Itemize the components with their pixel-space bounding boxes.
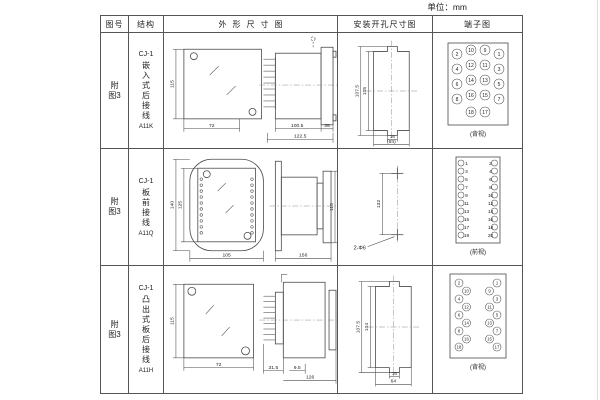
mount-cell-a11q: 132 2-Φ6 (338, 149, 433, 266)
svg-text:6: 6 (489, 176, 492, 182)
svg-text:4: 4 (456, 66, 459, 72)
svg-text:9: 9 (465, 192, 468, 198)
svg-text:115: 115 (329, 202, 335, 210)
svg-text:16: 16 (390, 134, 395, 139)
svg-text:7: 7 (496, 329, 499, 334)
svg-text:122.5: 122.5 (294, 133, 307, 139)
page-edge-line (597, 0, 598, 400)
svg-text:6: 6 (458, 313, 461, 318)
svg-text:8: 8 (456, 96, 459, 102)
svg-text:64: 64 (391, 378, 397, 384)
svg-text:8: 8 (458, 329, 461, 334)
header-terminal: 端子图 (433, 16, 522, 33)
svg-text:10: 10 (468, 47, 474, 53)
svg-text:15: 15 (464, 216, 470, 222)
svg-text:13: 13 (464, 208, 470, 214)
outline-drawing-a11h: 115 72 31.5 9.5 126 (164, 266, 337, 393)
svg-text:16: 16 (464, 337, 469, 342)
svg-text:104: 104 (364, 323, 370, 331)
terminal-cell-a11k: (背视) 210914121136141358161571817 (433, 33, 522, 149)
svg-text:2: 2 (458, 281, 461, 286)
svg-text:72: 72 (209, 122, 215, 128)
svg-text:13: 13 (482, 77, 488, 83)
svg-text:12: 12 (488, 200, 494, 206)
svg-text:10: 10 (464, 289, 469, 294)
struct-desc: 板前接线 (140, 188, 153, 228)
svg-text:13: 13 (487, 321, 492, 326)
svg-text:140: 140 (169, 200, 175, 209)
terminal-diagram-a11k: (背视) 210914121136141358161571817 (433, 33, 522, 149)
svg-text:11: 11 (482, 62, 487, 68)
mount-cell-a11k: 107.5 105 16 (64) (338, 33, 433, 149)
svg-text:132: 132 (376, 199, 382, 207)
svg-text:17: 17 (464, 224, 470, 230)
svg-text:9: 9 (484, 47, 487, 53)
spec-table: 图号 结构 外形尺寸图 安装开孔尺寸图 端子图 附图3 CJ-1 嵌入式后接线 … (100, 15, 523, 394)
header-mount: 安装开孔尺寸图 (338, 16, 433, 33)
fig-label: 附图3 (108, 320, 121, 340)
svg-text:19: 19 (464, 232, 470, 238)
svg-text:115: 115 (169, 79, 175, 87)
svg-text:16: 16 (392, 371, 397, 376)
svg-text:(背视): (背视) (470, 363, 486, 371)
svg-text:126: 126 (306, 375, 315, 381)
svg-text:2: 2 (456, 51, 459, 57)
fig-cell-a11q: 附图3 (101, 149, 129, 266)
fig-cell-a11h: 附图3 (101, 266, 129, 393)
svg-text:5: 5 (496, 313, 499, 318)
outline-drawing-a11q: 140 125 105 156 115 (164, 149, 337, 266)
svg-text:10: 10 (488, 192, 494, 198)
svg-text:17: 17 (495, 345, 500, 350)
svg-text:125: 125 (177, 200, 183, 209)
svg-text:(背视): (背视) (470, 130, 486, 138)
type-code: A11Q (139, 231, 154, 237)
model-label: CJ-1 (139, 51, 154, 58)
svg-text:18: 18 (468, 109, 474, 115)
mount-drawing-a11h: 107.5 104 16 64 (338, 266, 432, 393)
terminal-diagram-a11h: (背视) 210412614816181931151371517 (433, 266, 522, 393)
svg-text:107.5: 107.5 (354, 84, 360, 97)
mount-cell-a11h: 107.5 104 16 64 (338, 266, 433, 393)
svg-text:14: 14 (468, 77, 474, 83)
terminal-diagram-a11q: (前视) 1357911131517192468101214161820 (433, 149, 522, 266)
svg-text:9: 9 (488, 289, 491, 294)
struct-cell-a11q: CJ-1 板前接线 A11Q (129, 149, 164, 266)
type-code: A11H (139, 368, 154, 374)
svg-text:105: 105 (222, 252, 231, 258)
header-outline: 外形尺寸图 (164, 16, 338, 33)
svg-text:100.5: 100.5 (291, 122, 304, 128)
svg-text:115: 115 (169, 317, 175, 325)
svg-text:18: 18 (457, 345, 462, 350)
svg-text:1: 1 (465, 160, 468, 166)
terminal-cell-a11q: (前视) 1357911131517192468101214161820 (433, 149, 522, 266)
type-code: A11K (139, 124, 153, 130)
fig-cell-a11k: 附图3 (101, 33, 129, 149)
struct-desc: 嵌入式后接线 (140, 61, 153, 121)
mount-drawing-a11k: 107.5 105 16 (64) (338, 33, 432, 149)
svg-text:14: 14 (464, 321, 469, 326)
svg-text:16: 16 (468, 92, 474, 98)
svg-text:(64): (64) (387, 138, 396, 144)
svg-text:4: 4 (489, 168, 492, 174)
svg-text:17: 17 (482, 109, 488, 115)
outline-drawing-a11k: 115 72 100.5 35 (164, 33, 337, 149)
svg-text:14: 14 (488, 208, 494, 214)
svg-text:7: 7 (465, 184, 468, 190)
model-label: CJ-1 (139, 285, 154, 292)
svg-text:12: 12 (468, 62, 474, 68)
svg-text:72: 72 (216, 362, 222, 368)
mount-drawing-a11q: 132 2-Φ6 (338, 149, 432, 266)
svg-text:2: 2 (489, 160, 492, 166)
unit-label: 单位：mm (100, 1, 521, 13)
svg-text:6: 6 (456, 81, 459, 87)
svg-text:(前视): (前视) (470, 248, 486, 256)
svg-text:2-Φ6: 2-Φ6 (354, 245, 366, 251)
svg-text:35: 35 (324, 122, 330, 128)
svg-text:5: 5 (498, 81, 501, 87)
header-fig: 图号 (101, 16, 129, 33)
svg-text:5: 5 (465, 176, 468, 182)
svg-text:107.5: 107.5 (355, 321, 361, 334)
struct-desc: 凸出式板后接线 (140, 295, 153, 365)
svg-text:105: 105 (362, 86, 368, 94)
outline-cell-a11h: 115 72 31.5 9.5 126 (164, 266, 338, 393)
svg-text:15: 15 (487, 337, 492, 342)
svg-text:9.5: 9.5 (294, 365, 301, 371)
svg-text:11: 11 (464, 200, 469, 206)
svg-text:8: 8 (489, 184, 492, 190)
outline-cell-a11k: 115 72 100.5 35 (164, 33, 338, 149)
svg-text:1: 1 (496, 281, 499, 286)
svg-text:3: 3 (498, 66, 501, 72)
svg-text:18: 18 (488, 224, 494, 230)
model-label: CJ-1 (139, 178, 154, 185)
svg-text:11: 11 (487, 305, 492, 310)
svg-text:31.5: 31.5 (269, 365, 279, 371)
svg-text:12: 12 (464, 305, 469, 310)
svg-text:20: 20 (488, 232, 494, 238)
fig-label: 附图3 (108, 81, 121, 101)
svg-text:15: 15 (482, 92, 488, 98)
header-struct: 结构 (129, 16, 164, 33)
outline-cell-a11q: 140 125 105 156 115 (164, 149, 338, 266)
svg-text:4: 4 (458, 297, 461, 302)
svg-text:3: 3 (496, 297, 499, 302)
svg-text:7: 7 (498, 96, 501, 102)
terminal-cell-a11h: (背视) 210412614816181931151371517 (433, 266, 522, 393)
svg-text:156: 156 (299, 252, 308, 258)
fig-label: 附图3 (108, 197, 121, 217)
struct-cell-a11k: CJ-1 嵌入式后接线 A11K (129, 33, 164, 149)
svg-text:3: 3 (465, 168, 468, 174)
struct-cell-a11h: CJ-1 凸出式板后接线 A11H (129, 266, 164, 393)
svg-text:1: 1 (498, 51, 501, 57)
svg-text:16: 16 (488, 216, 494, 222)
